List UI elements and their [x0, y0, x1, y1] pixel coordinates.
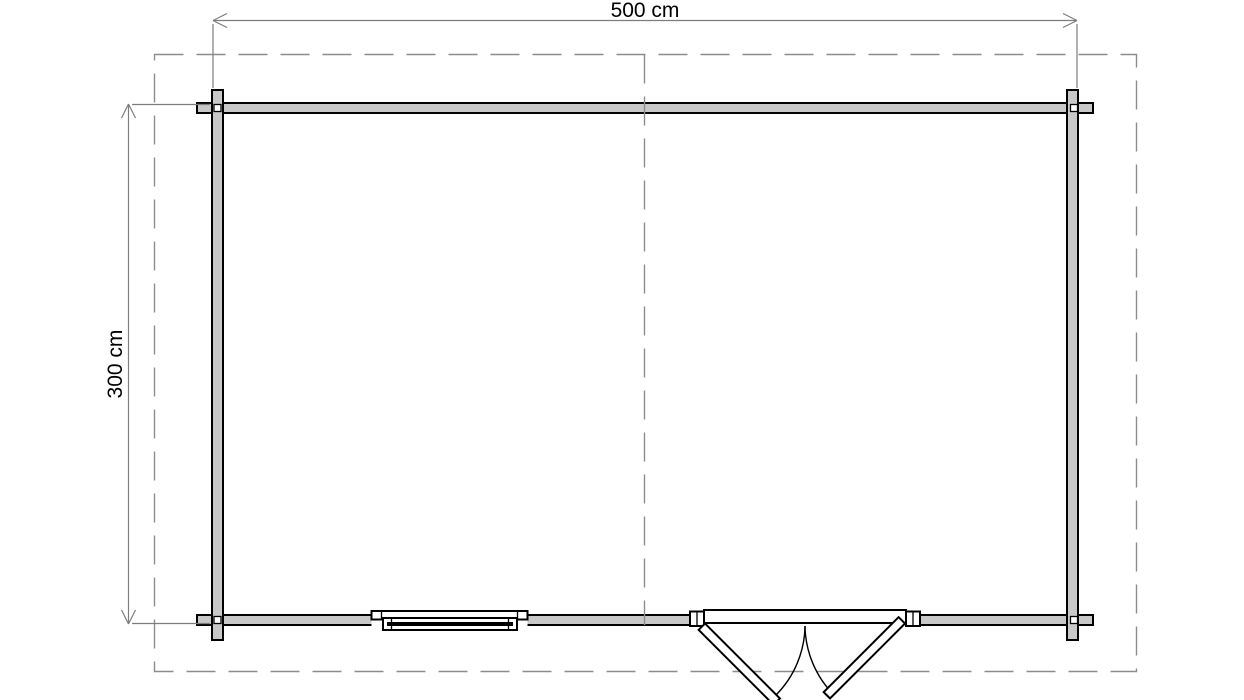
corner-joint-bottom-left [214, 617, 221, 624]
corner-joint-bottom-right [1071, 617, 1078, 624]
dimension-depth: 300 cm [104, 104, 210, 624]
double-door [690, 610, 920, 700]
dimension-width-label: 500 cm [611, 0, 680, 22]
floor-plan-drawing: 500 cm 300 cm [0, 0, 1244, 700]
roof-overhang-rect [155, 55, 1137, 672]
door-leaf-left [699, 624, 780, 700]
corner-joint-top-left [214, 105, 221, 112]
window [372, 611, 528, 630]
roof-overhang-outline [155, 55, 1137, 672]
wall-right [1067, 90, 1078, 640]
dimension-depth-label: 300 cm [104, 330, 127, 399]
door-swing-arc-right [805, 626, 834, 695]
wall-left [212, 90, 223, 640]
door-frame [704, 610, 906, 623]
floor-plan-canvas: 500 cm 300 cm [0, 0, 1244, 700]
corner-joint-top-right [1071, 105, 1078, 112]
door-swing-arc-left [776, 626, 805, 695]
door-leaf-right [824, 617, 905, 698]
